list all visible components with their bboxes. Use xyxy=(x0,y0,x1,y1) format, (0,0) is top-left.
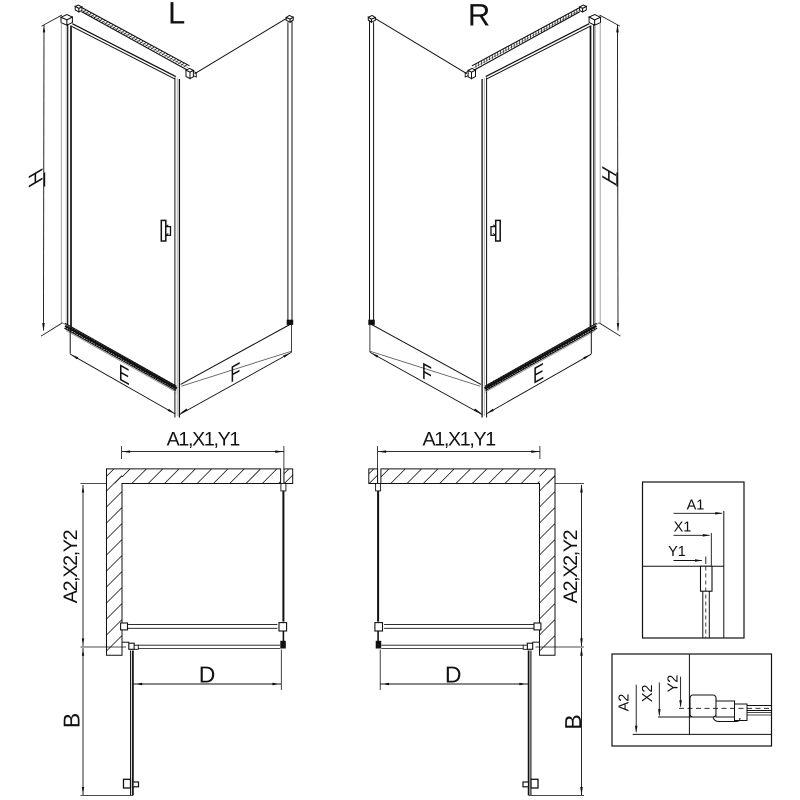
svg-text:L: L xyxy=(168,0,185,30)
svg-text:D: D xyxy=(199,662,216,688)
svg-text:D: D xyxy=(445,662,462,688)
svg-text:A1: A1 xyxy=(687,498,705,514)
svg-text:Y1: Y1 xyxy=(668,544,686,560)
svg-text:X2: X2 xyxy=(640,685,656,703)
svg-text:A2: A2 xyxy=(617,694,633,712)
svg-text:A1,X1,Y1: A1,X1,Y1 xyxy=(167,429,240,451)
svg-text:A2,X2,Y2: A2,X2,Y2 xyxy=(60,530,82,603)
svg-text:F: F xyxy=(230,357,240,388)
svg-text:B: B xyxy=(560,714,586,729)
svg-text:A2,X2,Y2: A2,X2,Y2 xyxy=(560,530,582,603)
svg-text:X1: X1 xyxy=(674,520,692,536)
svg-text:A1,X1,Y1: A1,X1,Y1 xyxy=(423,429,496,451)
svg-text:Y2: Y2 xyxy=(666,675,682,693)
svg-text:B: B xyxy=(59,713,85,728)
svg-text:F: F xyxy=(422,357,432,388)
svg-text:R: R xyxy=(468,0,490,33)
